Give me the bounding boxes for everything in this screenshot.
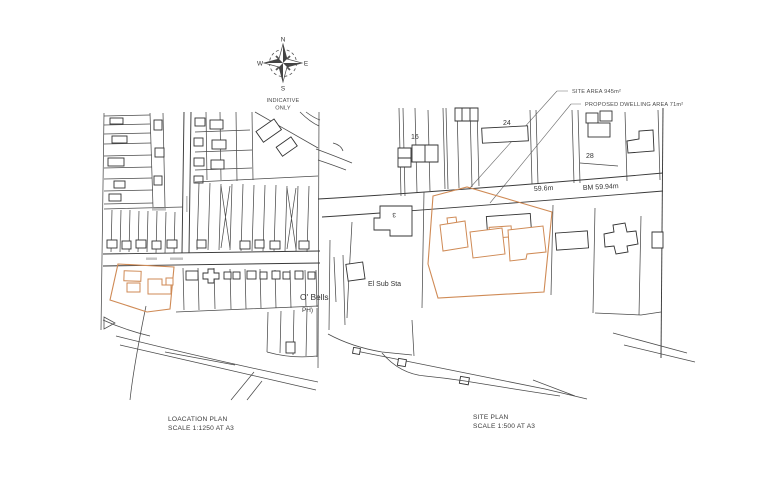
drawing-sheet: N E S W INDICATIVE ONLY SITE AREA 945m² …	[0, 0, 760, 500]
location-plan-linework	[101, 112, 320, 400]
house-24-label: 24	[503, 120, 511, 127]
site-plan-map: 16 24 28 3 59.6m BM 59.94m El Sub Sta O'…	[300, 108, 695, 399]
spot-height-label: 59.6m	[534, 185, 554, 193]
pub-type-label: PH)	[302, 307, 313, 314]
site-plan-title: SITE PLAN	[473, 414, 509, 421]
location-plan-title: LOACATION PLAN	[168, 416, 228, 423]
proposed-dwelling-area-annotation: PROPOSED DWELLING AREA 71m²	[585, 102, 683, 108]
compass-note-line2: ONLY	[275, 106, 291, 112]
location-plan-map	[101, 112, 320, 400]
compass-rose-icon: N E S W INDICATIVE ONLY	[257, 37, 308, 112]
site-plan-linework	[316, 108, 695, 399]
site-plan-scale: SCALE 1:500 AT A3	[473, 423, 535, 430]
compass-south-label: S	[281, 86, 285, 93]
house-16-label: 16	[411, 134, 419, 141]
location-plan-caption: LOACATION PLAN SCALE 1:1250 AT A3	[168, 416, 234, 432]
compass-note-line1: INDICATIVE	[267, 98, 300, 104]
compass-west-label: W	[257, 61, 264, 68]
site-plan-caption: SITE PLAN SCALE 1:500 AT A3	[473, 414, 535, 430]
compass-east-label: E	[304, 61, 308, 68]
illegible-road-name	[146, 258, 157, 260]
substation-label: El Sub Sta	[368, 281, 401, 288]
location-plan-site-buildings	[124, 271, 173, 294]
bench-mark-label: BM 59.94m	[583, 183, 619, 192]
illegible-street-label	[152, 208, 166, 211]
house-28-label: 28	[586, 153, 594, 160]
location-plan-scale: SCALE 1:1250 AT A3	[168, 425, 234, 432]
site-area-annotation: SITE AREA 945m²	[572, 89, 621, 95]
compass-north-label: N	[281, 37, 286, 44]
illegible-road-name-2	[170, 258, 183, 260]
pub-name-label: O' Bells	[300, 292, 329, 302]
